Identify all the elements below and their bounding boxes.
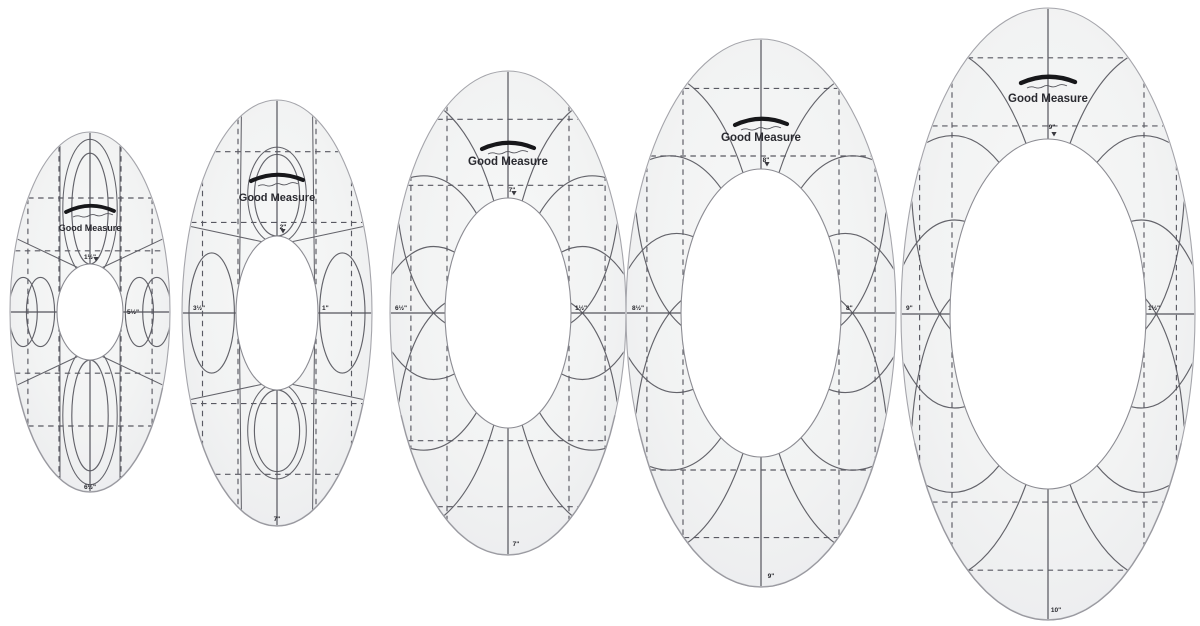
svg-text:9": 9"	[1049, 124, 1056, 131]
svg-text:9": 9"	[906, 305, 913, 312]
svg-text:6½": 6½"	[395, 304, 407, 312]
svg-text:7": 7"	[509, 187, 516, 194]
svg-text:3½": 3½"	[193, 304, 205, 312]
svg-text:1½": 1½"	[84, 253, 96, 261]
svg-text:10": 10"	[1051, 607, 1061, 614]
svg-text:Good Measure: Good Measure	[721, 132, 801, 144]
svg-text:8": 8"	[846, 305, 853, 312]
svg-text:Good Measure: Good Measure	[239, 192, 315, 204]
svg-text:2": 2"	[280, 224, 287, 231]
svg-text:Good Measure: Good Measure	[468, 156, 548, 168]
svg-text:5½": 5½"	[127, 308, 139, 316]
svg-text:Good Measure: Good Measure	[59, 223, 122, 233]
svg-text:7": 7"	[274, 516, 281, 523]
svg-text:8": 8"	[763, 157, 770, 164]
svg-text:9": 9"	[768, 573, 775, 580]
svg-text:7": 7"	[513, 541, 520, 548]
svg-text:Good Measure: Good Measure	[1008, 93, 1088, 105]
svg-text:1": 1"	[322, 305, 329, 312]
svg-text:1½": 1½"	[1148, 304, 1160, 312]
svg-text:8½": 8½"	[632, 304, 644, 312]
svg-text:6½": 6½"	[84, 483, 96, 491]
svg-text:1½": 1½"	[575, 304, 587, 312]
